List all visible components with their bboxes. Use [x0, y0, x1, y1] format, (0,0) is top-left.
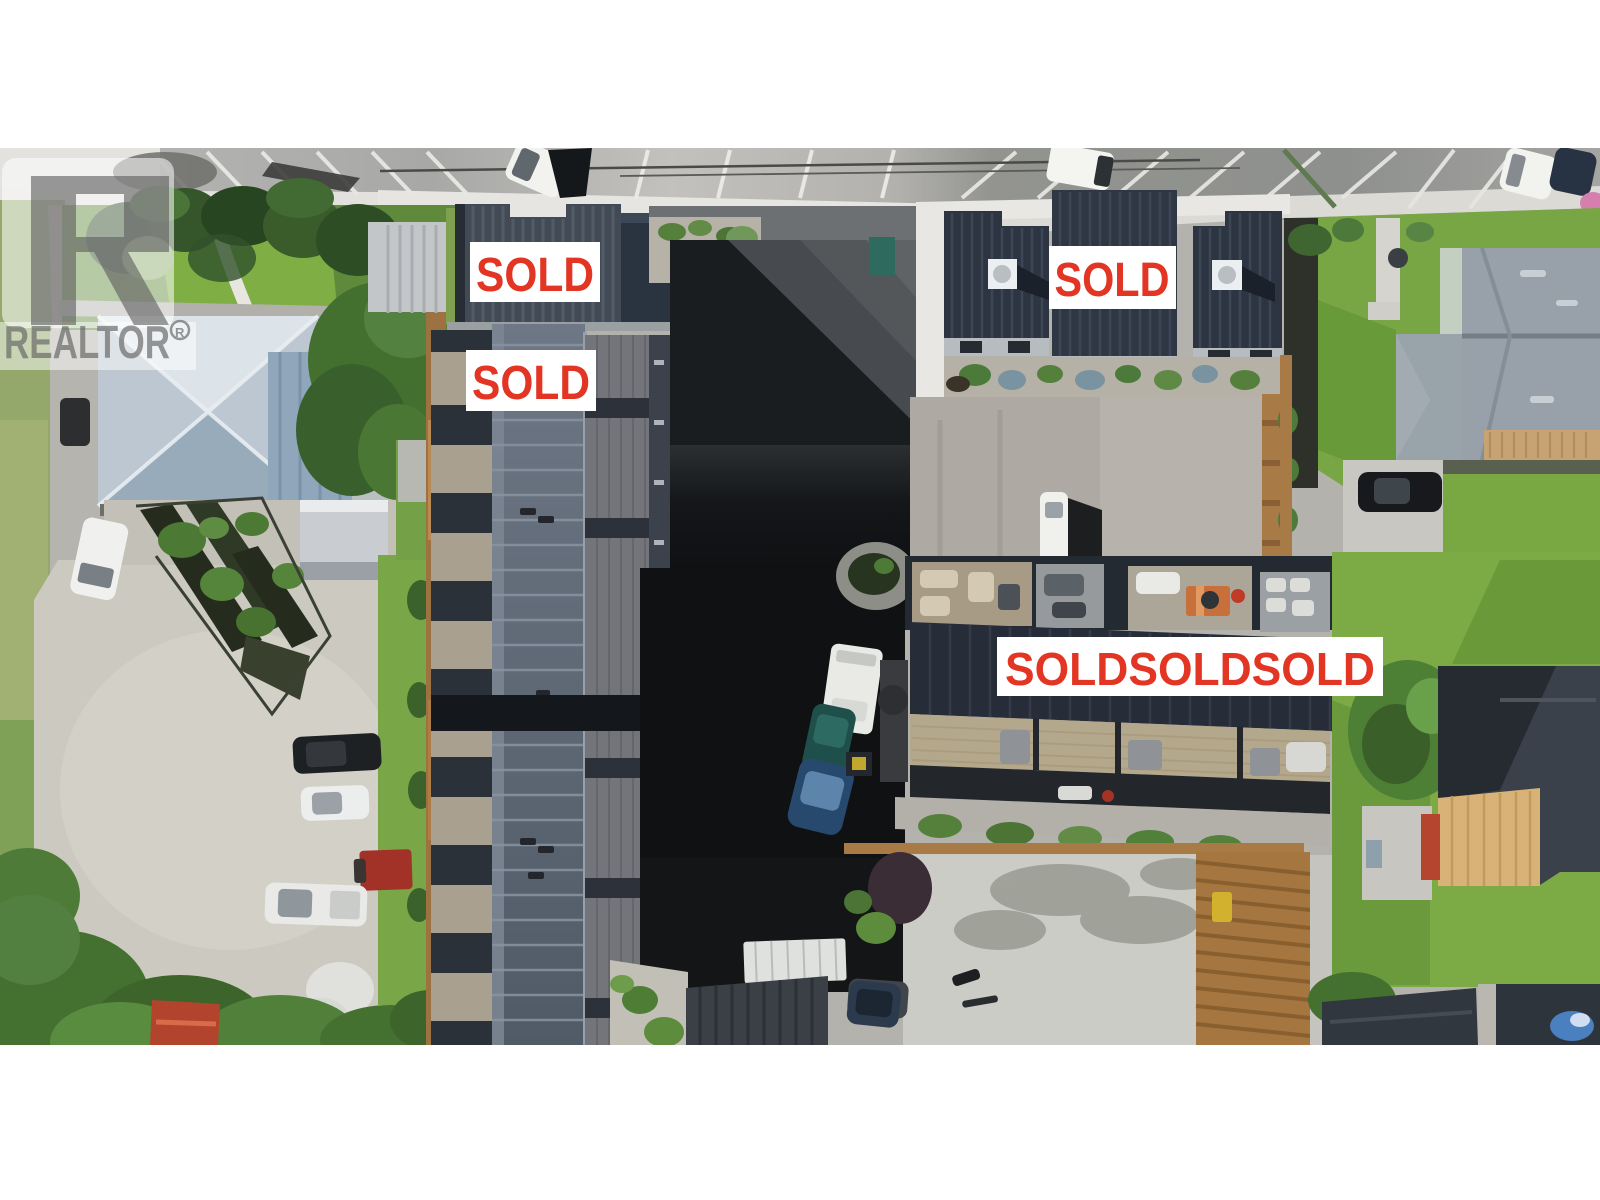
svg-text:SOLD: SOLD: [472, 357, 590, 410]
svg-text:SOLDSOLDSOLD: SOLDSOLDSOLD: [1005, 643, 1375, 695]
svg-text:SOLD: SOLD: [476, 249, 594, 302]
svg-text:SOLD: SOLD: [1055, 254, 1170, 307]
svg-text:R: R: [175, 325, 185, 340]
svg-text:REALTOR: REALTOR: [4, 316, 170, 368]
